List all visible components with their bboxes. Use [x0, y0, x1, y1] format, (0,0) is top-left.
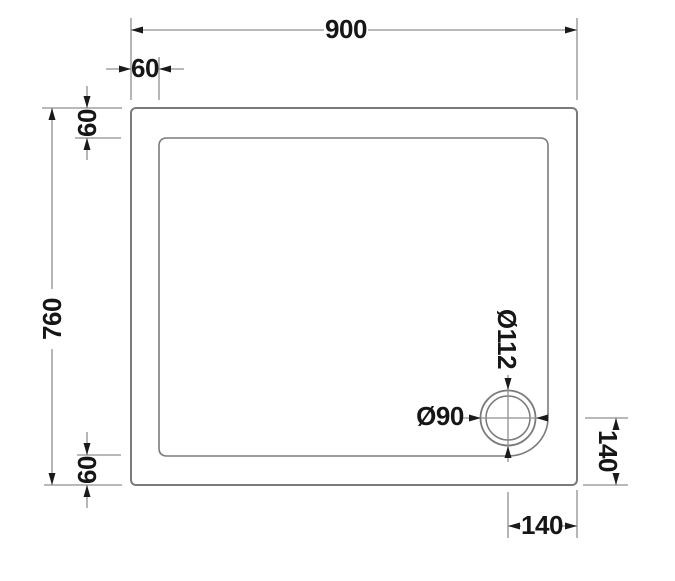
tray-inner-edge — [159, 138, 548, 456]
extension-lines — [42, 18, 628, 538]
dimension-arrowheads — [49, 27, 620, 530]
dim-label-waste-inner-diameter: Ø90 — [416, 401, 464, 431]
dim-label-overall-width: 900 — [325, 14, 367, 44]
tray-outer-edge — [131, 108, 577, 485]
dim-label-waste-outer-diameter: Ø112 — [492, 309, 522, 369]
dim-label-corner-inset: 60 — [131, 53, 159, 83]
dim-label-overall-height: 760 — [37, 298, 67, 340]
drawing-svg: 900 60 60 760 60 Ø112 Ø90 140 140 — [0, 0, 675, 581]
dim-label-rim-top: 60 — [72, 109, 102, 137]
dim-label-rim-bottom: 60 — [72, 456, 102, 484]
dim-label-waste-from-bottom: 140 — [593, 430, 623, 472]
shower-tray-technical-drawing: 900 60 60 760 60 Ø112 Ø90 140 140 — [0, 0, 675, 581]
dimension-lines — [52, 30, 616, 526]
dim-label-waste-from-right: 140 — [521, 510, 563, 540]
